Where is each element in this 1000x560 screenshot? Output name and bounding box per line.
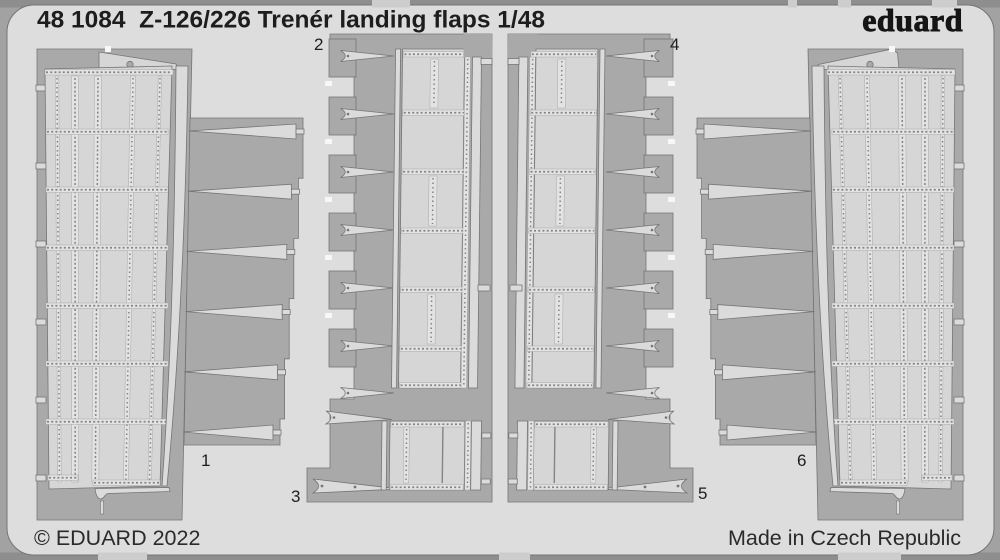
svg-text:6: 6 [797, 451, 806, 470]
svg-text:Made in Czech Republic: Made in Czech Republic [728, 526, 961, 550]
svg-text:4: 4 [670, 35, 679, 54]
svg-text:2: 2 [314, 35, 323, 54]
svg-text:48 1084 Z-126/226 Trenér land: 48 1084 Z-126/226 Trenér landing flaps 1… [37, 7, 545, 34]
svg-text:3: 3 [291, 487, 300, 506]
svg-text:eduard: eduard [862, 2, 963, 38]
svg-text:1: 1 [201, 451, 210, 470]
svg-text:5: 5 [698, 484, 707, 503]
svg-text:© EDUARD 2022: © EDUARD 2022 [34, 526, 200, 550]
